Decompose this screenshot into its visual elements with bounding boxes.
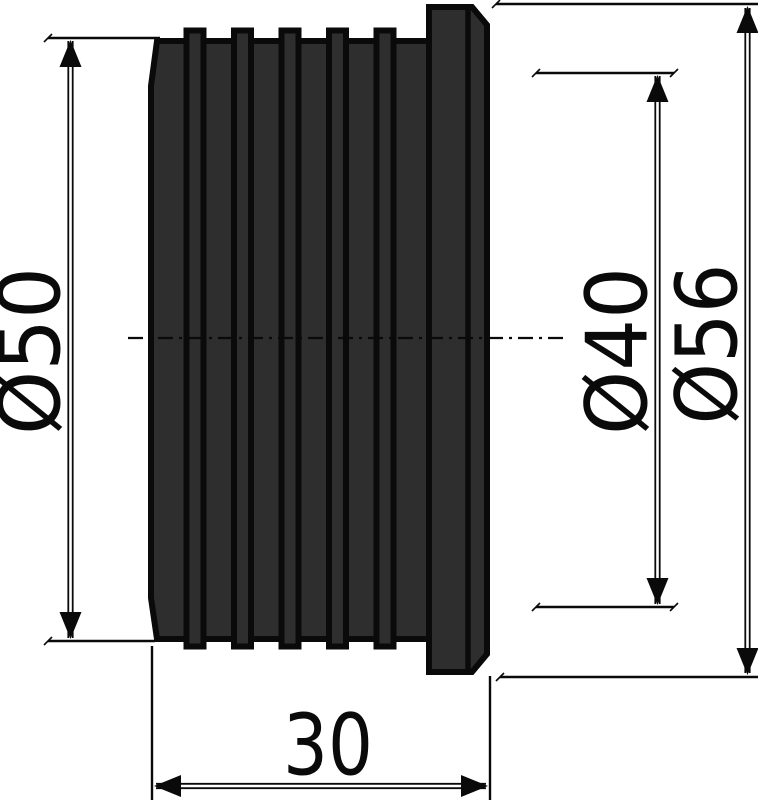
- dim-label-flange-diameter: Ø56: [659, 264, 758, 425]
- arrowhead-right: [461, 775, 488, 797]
- arrowhead-down: [60, 612, 82, 639]
- arrowhead-up: [647, 75, 669, 102]
- arrowhead-down: [737, 648, 758, 675]
- dim-label-inner-diameter: Ø40: [569, 267, 668, 435]
- seal-part: [128, 7, 568, 672]
- technical-drawing: Ø50 Ø40 Ø56: [0, 0, 758, 800]
- seal-flange: [429, 7, 487, 672]
- dim-label-length: 30: [283, 697, 373, 796]
- dim-inner-diameter: Ø40: [532, 69, 678, 611]
- arrowhead-down: [647, 578, 669, 605]
- dim-label-outer-diameter: Ø50: [0, 267, 81, 435]
- arrowhead-left: [154, 775, 181, 797]
- arrowhead-up: [60, 40, 82, 67]
- arrowhead-up: [737, 6, 758, 33]
- dim-outer-diameter: Ø50: [0, 34, 160, 645]
- drawing-canvas: Ø50 Ø40 Ø56: [0, 0, 758, 800]
